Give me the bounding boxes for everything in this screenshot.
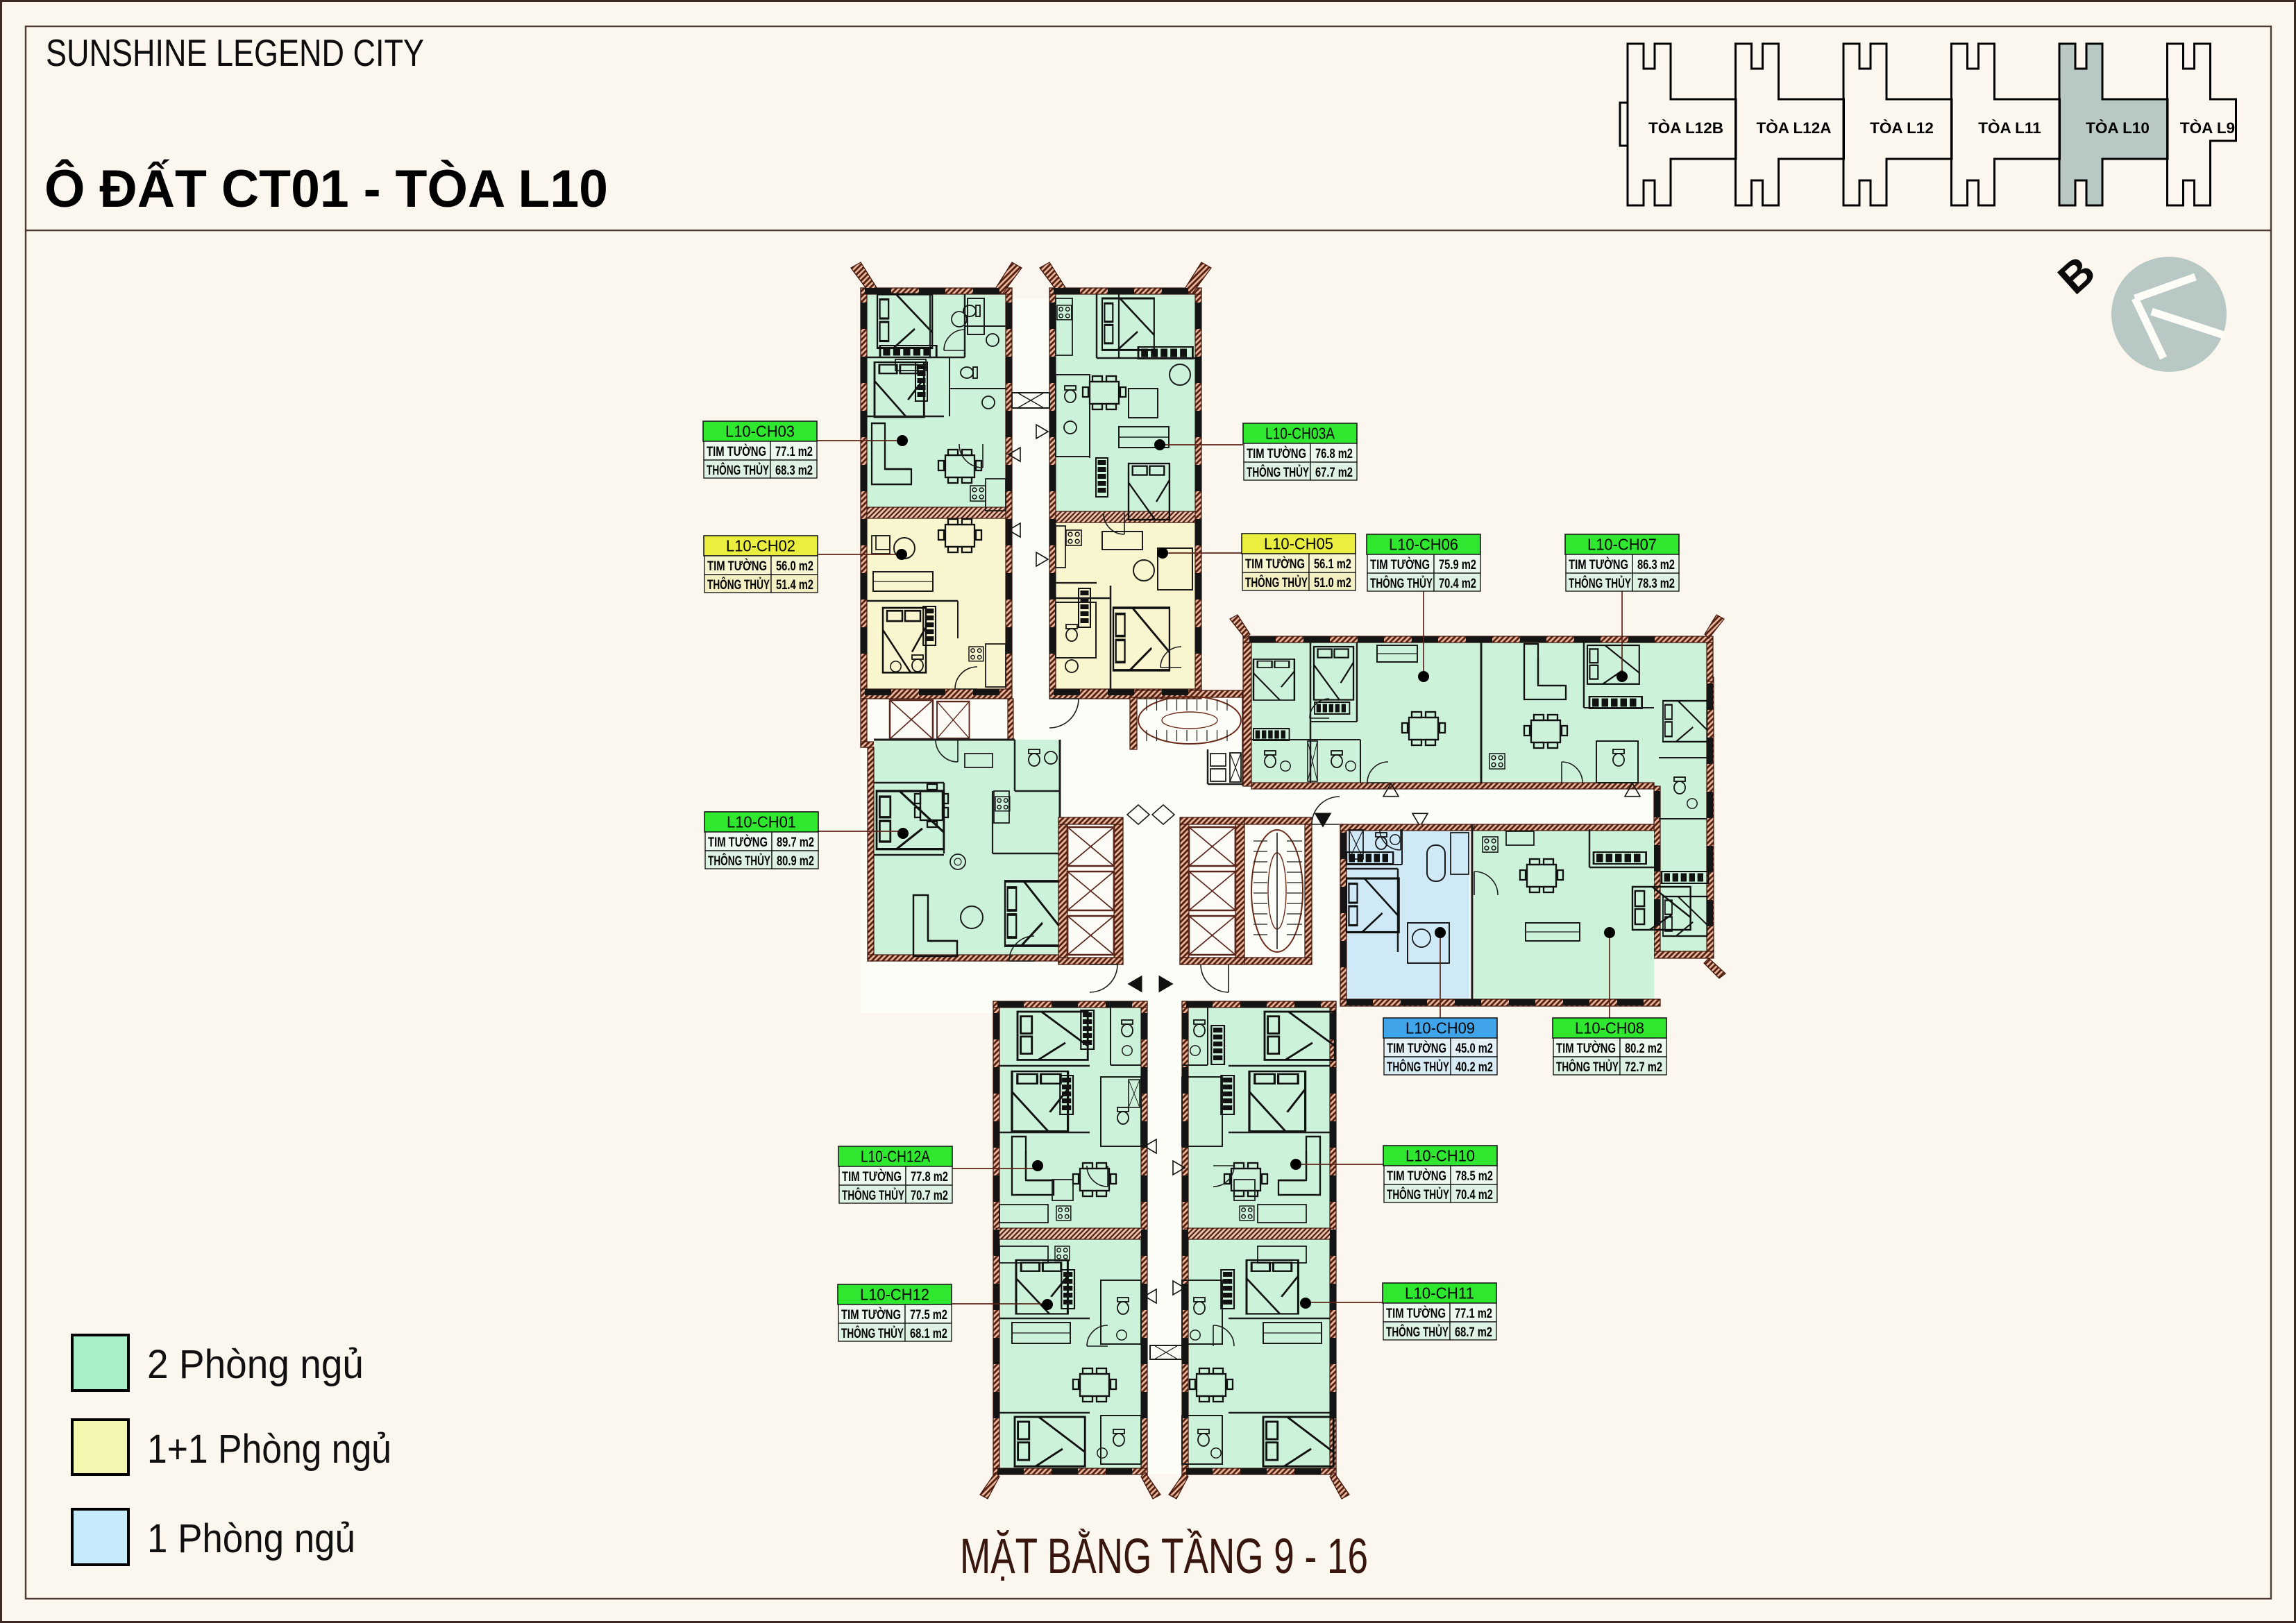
svg-text:56.0 m2: 56.0 m2 (776, 559, 813, 574)
svg-text:78.3 m2: 78.3 m2 (1637, 577, 1675, 591)
svg-text:THÔNG THỦY: THÔNG THỦY (1386, 1325, 1449, 1340)
svg-text:TIM TƯỜNG: TIM TƯỜNG (1247, 446, 1306, 461)
svg-text:80.9 m2: 80.9 m2 (777, 854, 814, 869)
svg-text:40.2 m2: 40.2 m2 (1455, 1060, 1493, 1075)
svg-text:1+1 Phòng ngủ: 1+1 Phòng ngủ (147, 1427, 391, 1472)
svg-text:L10-CH03: L10-CH03 (725, 423, 795, 441)
svg-text:L10-CH02: L10-CH02 (726, 537, 795, 555)
svg-text:L10-CH08: L10-CH08 (1575, 1019, 1644, 1037)
svg-text:L10-CH10: L10-CH10 (1406, 1147, 1475, 1165)
svg-text:TIM TƯỜNG: TIM TƯỜNG (707, 444, 766, 459)
svg-text:TÒA L12B: TÒA L12B (1648, 119, 1723, 137)
svg-text:56.1 m2: 56.1 m2 (1314, 557, 1351, 572)
svg-text:THÔNG THỦY: THÔNG THỦY (1556, 1060, 1619, 1075)
svg-text:TIM TƯỜNG: TIM TƯỜNG (1569, 557, 1628, 572)
svg-text:Ô ĐẤT CT01 - TÒA L10: Ô ĐẤT CT01 - TÒA L10 (44, 160, 608, 219)
svg-text:77.1 m2: 77.1 m2 (1455, 1307, 1492, 1321)
svg-text:TÒA L11: TÒA L11 (1978, 119, 2041, 137)
svg-text:TIM TƯỜNG: TIM TƯỜNG (842, 1169, 902, 1184)
svg-text:51.0 m2: 51.0 m2 (1314, 576, 1351, 590)
svg-text:78.5 m2: 78.5 m2 (1455, 1169, 1493, 1184)
svg-text:L10-CH12: L10-CH12 (860, 1286, 929, 1304)
svg-text:70.4 m2: 70.4 m2 (1439, 577, 1476, 591)
svg-text:L10-CH01: L10-CH01 (727, 813, 796, 831)
svg-text:THÔNG THỦY: THÔNG THỦY (707, 463, 769, 478)
svg-text:MẶT BẰNG TẦNG 9 - 16: MẶT BẰNG TẦNG 9 - 16 (960, 1529, 1368, 1584)
svg-text:THÔNG THỦY: THÔNG THỦY (1387, 1060, 1449, 1075)
svg-text:1 Phòng ngủ: 1 Phòng ngủ (147, 1516, 355, 1561)
svg-text:SUNSHINE LEGEND CITY: SUNSHINE LEGEND CITY (46, 31, 424, 74)
svg-text:THÔNG THỦY: THÔNG THỦY (842, 1188, 904, 1203)
svg-text:L10-CH11: L10-CH11 (1405, 1284, 1474, 1302)
svg-text:THÔNG THỦY: THÔNG THỦY (841, 1326, 904, 1341)
svg-text:L10-CH06: L10-CH06 (1389, 536, 1458, 554)
svg-text:TIM TƯỜNG: TIM TƯỜNG (1245, 556, 1305, 572)
svg-text:TIM TƯỜNG: TIM TƯỜNG (1386, 1306, 1446, 1321)
svg-text:TIM TƯỜNG: TIM TƯỜNG (1387, 1169, 1446, 1184)
svg-text:TIM TƯỜNG: TIM TƯỜNG (1387, 1041, 1446, 1056)
svg-text:TÒA L10: TÒA L10 (2086, 119, 2150, 137)
svg-text:70.7 m2: 70.7 m2 (911, 1189, 948, 1203)
svg-text:L10-CH07: L10-CH07 (1587, 536, 1657, 554)
svg-text:THÔNG THỦY: THÔNG THỦY (1245, 575, 1308, 590)
svg-text:67.7 m2: 67.7 m2 (1315, 466, 1353, 480)
svg-text:L10-CH03A: L10-CH03A (1265, 425, 1335, 443)
svg-text:THÔNG THỦY: THÔNG THỦY (708, 853, 770, 869)
svg-text:TIM TƯỜNG: TIM TƯỜNG (841, 1307, 901, 1323)
svg-text:45.0 m2: 45.0 m2 (1455, 1042, 1493, 1056)
svg-text:THÔNG THỦY: THÔNG THỦY (1569, 576, 1631, 591)
svg-text:51.4 m2: 51.4 m2 (776, 578, 813, 593)
svg-text:THÔNG THỦY: THÔNG THỦY (707, 577, 770, 593)
svg-text:86.3 m2: 86.3 m2 (1637, 558, 1675, 572)
svg-text:L10-CH05: L10-CH05 (1264, 535, 1333, 553)
svg-text:TÒA L9: TÒA L9 (2180, 119, 2235, 137)
svg-text:TÒA L12A: TÒA L12A (1757, 119, 1832, 137)
svg-text:TIM TƯỜNG: TIM TƯỜNG (707, 559, 767, 574)
svg-text:77.5 m2: 77.5 m2 (910, 1308, 947, 1323)
svg-text:80.2 m2: 80.2 m2 (1625, 1042, 1662, 1056)
svg-text:76.8 m2: 76.8 m2 (1315, 447, 1353, 461)
svg-text:77.1 m2: 77.1 m2 (775, 445, 813, 459)
svg-text:L10-CH12A: L10-CH12A (861, 1148, 930, 1166)
svg-text:2 Phòng ngủ: 2 Phòng ngủ (147, 1342, 364, 1387)
svg-text:TÒA L12: TÒA L12 (1870, 119, 1934, 137)
svg-text:TIM TƯỜNG: TIM TƯỜNG (1370, 557, 1430, 572)
svg-text:TIM TƯỜNG: TIM TƯỜNG (708, 835, 768, 850)
svg-text:THÔNG THỦY: THÔNG THỦY (1247, 465, 1309, 480)
svg-text:THÔNG THỦY: THÔNG THỦY (1387, 1187, 1449, 1203)
svg-text:75.9 m2: 75.9 m2 (1439, 558, 1476, 572)
svg-text:THÔNG THỦY: THÔNG THỦY (1370, 576, 1433, 591)
svg-text:72.7 m2: 72.7 m2 (1625, 1060, 1662, 1075)
svg-text:TIM TƯỜNG: TIM TƯỜNG (1556, 1041, 1616, 1056)
svg-text:70.4 m2: 70.4 m2 (1455, 1188, 1493, 1203)
svg-text:68.3 m2: 68.3 m2 (775, 464, 813, 478)
svg-text:77.8 m2: 77.8 m2 (911, 1170, 948, 1184)
svg-text:68.1 m2: 68.1 m2 (910, 1327, 947, 1341)
svg-text:L10-CH09: L10-CH09 (1406, 1019, 1475, 1037)
svg-text:89.7 m2: 89.7 m2 (777, 835, 814, 850)
svg-text:68.7 m2: 68.7 m2 (1455, 1325, 1492, 1340)
